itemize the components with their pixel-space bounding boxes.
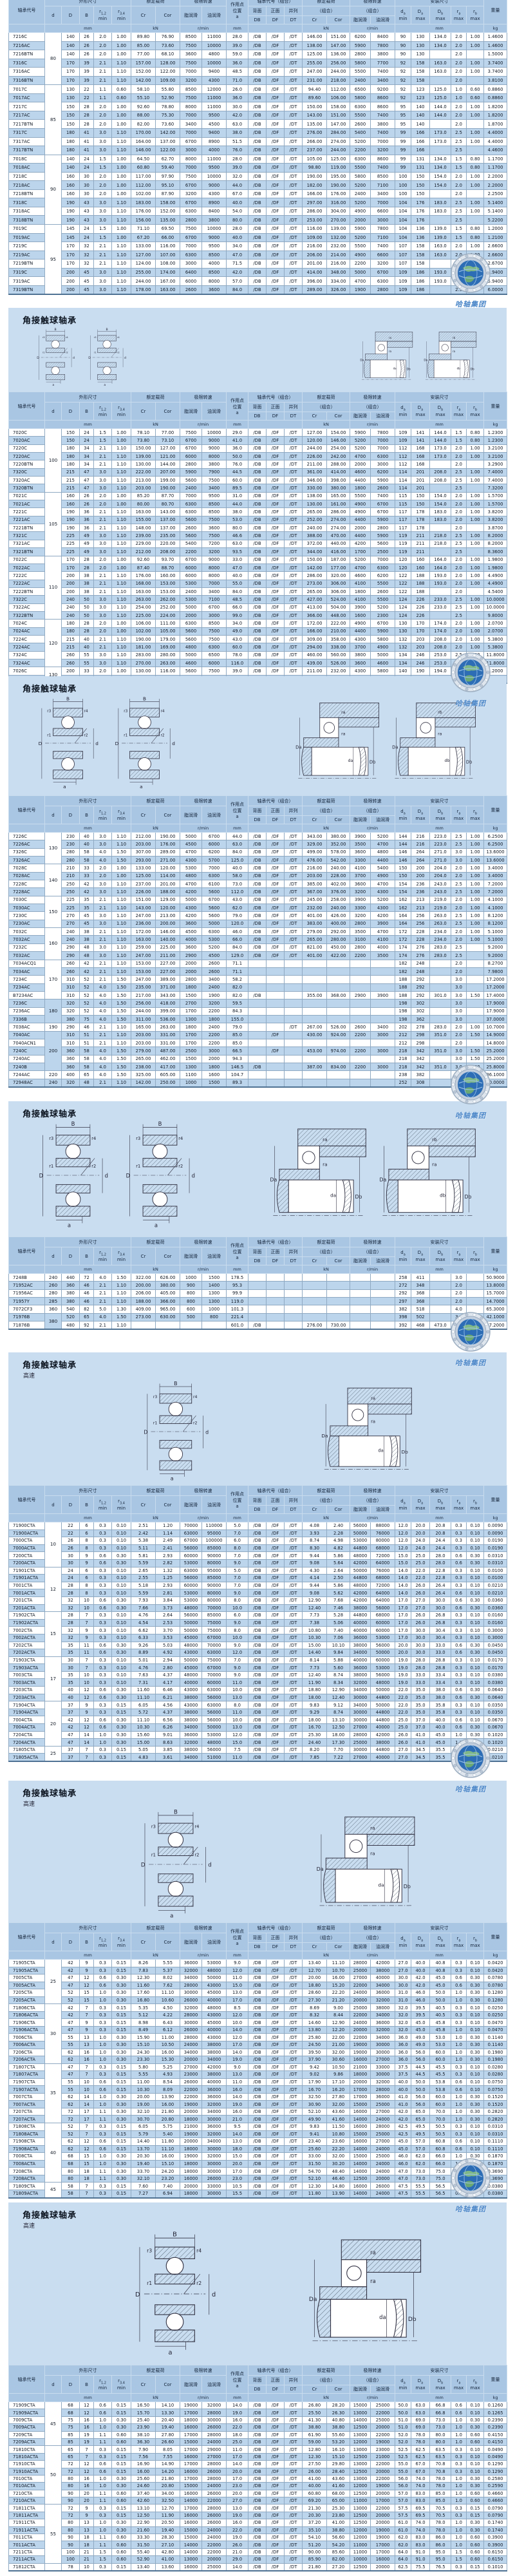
column-header: Cr: [303, 1943, 327, 1951]
data-cell: 12.90: [327, 1687, 350, 1694]
brand-logo: 哈轴集团: [445, 1738, 496, 1794]
bore-diameter-group: 105: [45, 492, 62, 556]
data-cell: 30000: [371, 2049, 395, 2056]
data-cell: 14.40: [303, 1649, 327, 1657]
data-cell: 20.80: [156, 2483, 180, 2490]
data-cell: 1.5700: [484, 492, 507, 500]
section-title: 角接触球轴承: [8, 308, 507, 327]
column-header: ramax: [451, 2376, 467, 2394]
data-cell: 8.74: [327, 1709, 350, 1716]
column-header: DB: [248, 1943, 267, 1951]
data-cell: 7: [80, 2446, 94, 2453]
data-cell: 3.0: [94, 596, 112, 603]
data-cell: 2.1: [94, 68, 112, 77]
data-cell: [303, 1039, 327, 1046]
data-cell: /DF: [267, 2093, 285, 2101]
bearing-code: 7022AC: [9, 563, 45, 571]
data-cell: 200: [411, 872, 430, 880]
data-cell: 15000: [350, 2153, 371, 2161]
bearing-code: 71901ACTA: [9, 1575, 45, 1582]
data-cell: 47.0: [395, 2175, 411, 2183]
data-cell: 367.00: [303, 888, 327, 896]
data-cell: 52: [62, 1996, 80, 2004]
data-cell: /DT: [285, 2101, 303, 2108]
data-cell: 0.10: [467, 1544, 484, 1552]
data-cell: /DB: [248, 1687, 267, 1694]
data-cell: 25000: [350, 1967, 371, 1975]
data-cell: /DT: [285, 2026, 303, 2034]
data-cell: /DB: [248, 1960, 267, 1967]
data-cell: 5.0: [227, 1567, 248, 1575]
data-cell: /DT: [285, 1596, 303, 1604]
bearing-code: 7005CTA: [9, 1975, 45, 1982]
data-cell: 0.15: [112, 1967, 131, 1975]
data-cell: 48000: [202, 2004, 227, 2012]
data-cell: 4700: [350, 277, 371, 286]
data-cell: [285, 1274, 303, 1282]
unit-label: kN: [131, 1265, 180, 1274]
bearing-code: 7003CTA: [9, 1671, 45, 1679]
data-cell: 4900: [350, 620, 371, 627]
data-cell: 15000: [180, 2438, 202, 2445]
data-cell: 69.0: [411, 2424, 430, 2431]
data-cell: 12000: [350, 2483, 371, 2490]
data-cell: 32000: [350, 1679, 371, 1687]
data-cell: 0.30: [112, 2483, 131, 2490]
data-cell: 360: [62, 1047, 80, 1055]
column-header: 额定载荷: [131, 0, 180, 6]
data-cell: /DT: [285, 1575, 303, 1582]
data-cell: [430, 1015, 451, 1023]
data-cell: 416.00: [327, 548, 350, 556]
data-cell: /DB: [248, 1716, 267, 1724]
data-cell: 4100: [350, 864, 371, 872]
data-cell: 7: [80, 2183, 94, 2190]
data-cell: 1.10: [112, 643, 131, 651]
data-cell: 0.10: [467, 2145, 484, 2153]
data-cell: 0.10: [467, 2078, 484, 2086]
data-cell: 142.00: [156, 129, 180, 138]
data-cell: 176: [411, 198, 430, 207]
data-cell: 0.1740: [484, 2526, 507, 2533]
data-cell: 60.0: [430, 2101, 451, 2108]
data-cell: 0.6: [451, 2138, 467, 2146]
data-cell: 15000: [180, 2483, 202, 2490]
bearing-code: 7319BTN: [9, 285, 45, 294]
data-cell: 1000: [180, 1274, 202, 1282]
data-cell: 4.1000: [484, 896, 507, 904]
data-cell: 154: [395, 880, 411, 888]
data-cell: 17.10: [327, 2078, 350, 2086]
data-cell: 0.30: [112, 1649, 131, 1657]
data-cell: 47.0: [395, 2168, 411, 2175]
data-cell: 120: [395, 563, 411, 571]
data-cell: 294.00: [303, 643, 327, 651]
column-header: 外形尺寸: [45, 1923, 131, 1933]
column-header: 正面: [267, 2376, 285, 2385]
data-cell: 38000: [350, 1671, 371, 1679]
data-cell: /DF: [267, 102, 285, 111]
column-header: DB: [248, 412, 267, 421]
data-cell: 24: [62, 1575, 80, 1582]
data-cell: 46.0: [411, 1996, 430, 2004]
data-cell: /DF: [267, 2041, 285, 2049]
data-cell: /DB: [248, 76, 267, 85]
data-cell: 104: [395, 207, 411, 216]
data-cell: /DB: [248, 627, 267, 635]
data-cell: 33.0: [411, 1671, 430, 1679]
data-cell: 348.00: [327, 268, 350, 277]
data-cell: 0.6: [94, 1596, 112, 1604]
data-cell: 17.0: [227, 2453, 248, 2460]
data-cell: 12.70: [303, 1967, 327, 1975]
data-cell: 147.00: [327, 41, 350, 50]
data-cell: 1.10: [112, 572, 131, 580]
data-cell: 47: [62, 2071, 80, 2079]
column-header: d: [45, 6, 62, 24]
data-cell: 1.5: [94, 437, 112, 444]
data-cell: 42000: [202, 2063, 227, 2071]
data-cell: 380.00: [327, 833, 350, 840]
data-cell: 6700: [202, 603, 227, 611]
column-header: Damax: [411, 402, 430, 421]
data-cell: 174.00: [156, 268, 180, 277]
data-cell: /DF: [267, 516, 285, 524]
data-cell: 4400: [350, 532, 371, 540]
data-cell: 19000: [350, 2041, 371, 2049]
data-cell: /DB: [248, 68, 267, 77]
data-cell: 1.0: [94, 2101, 112, 2108]
data-cell: 7500: [180, 225, 202, 234]
data-cell: 1.10: [112, 635, 131, 643]
column-header: rbmax: [467, 6, 484, 24]
data-cell: 63.0: [227, 840, 248, 848]
data-cell: 8: [80, 1544, 94, 1552]
data-cell: 41.0: [395, 2101, 411, 2108]
data-cell: /DF: [267, 556, 285, 563]
data-cell: 9.5: [227, 2123, 248, 2131]
data-cell: 50.0: [227, 453, 248, 460]
data-cell: 414.00: [327, 468, 350, 476]
data-cell: 292: [411, 991, 430, 999]
data-cell: 39.50: [303, 2049, 327, 2056]
data-cell: 2600: [202, 967, 227, 975]
table-header: 轴承代号外形尺寸额定载荷极限转速作用点位置a轴承代号（组合）额定载荷极限转速安装…: [9, 2365, 507, 2402]
data-cell: 35.0: [411, 1694, 430, 1701]
data-cell: /DF: [267, 1967, 285, 1975]
data-cell: /DT: [285, 920, 303, 927]
data-cell: 0.30: [112, 2526, 131, 2533]
data-cell: 2.53: [156, 1619, 180, 1627]
data-cell: 12.0: [395, 1522, 411, 1530]
data-cell: 1.50: [112, 1015, 131, 1023]
data-cell: 80: [62, 2526, 80, 2533]
data-cell: /DB: [248, 285, 267, 294]
data-cell: 14.7000: [484, 1298, 507, 1305]
data-cell: 0.30: [112, 2093, 131, 2101]
data-cell: /DT: [285, 1537, 303, 1545]
data-cell: 0.10: [467, 2468, 484, 2475]
data-cell: 3.0: [94, 477, 112, 484]
data-cell: 75: [80, 1015, 94, 1023]
unit-label: [9, 1951, 45, 1960]
data-cell: 7: [80, 2071, 94, 2079]
data-cell: 64000: [371, 1596, 395, 1604]
data-cell: /DT: [285, 548, 303, 556]
data-cell: 276.00: [303, 129, 327, 138]
column-header: Dbmax: [430, 1496, 451, 1514]
data-cell: 0.6: [451, 1716, 467, 1724]
data-cell: 3600: [350, 880, 371, 888]
data-cell: 24000: [350, 1989, 371, 1997]
data-cell: 6.0: [227, 1537, 248, 1545]
data-cell: 48.5: [227, 68, 248, 77]
data-cell: 3.0: [451, 848, 467, 856]
column-header: 脂润滑: [350, 2385, 371, 2394]
data-cell: 1.50: [112, 976, 131, 983]
data-cell: /DT: [285, 277, 303, 286]
data-cell: 0.0090: [484, 1529, 507, 1537]
data-cell: 263.00: [156, 1023, 180, 1031]
data-cell: 1.00: [467, 596, 484, 603]
column-header: DT: [285, 1257, 303, 1265]
data-cell: 56000: [371, 1604, 395, 1612]
data-cell: 37: [62, 1709, 80, 1716]
data-cell: 4400: [350, 516, 371, 524]
data-cell: 0.1740: [484, 2519, 507, 2526]
data-cell: /DT: [285, 2519, 303, 2526]
data-cell: 5.59: [131, 1589, 156, 1597]
table-row: 71906ACTA4790.30.158.496.12260004000014.…: [9, 2026, 507, 2034]
data-cell: 3.0: [451, 1007, 467, 1015]
data-cell: 7000: [180, 242, 202, 251]
data-cell: 27000: [180, 2063, 202, 2071]
data-cell: 1.9800: [484, 556, 507, 563]
data-cell: 9200: [371, 85, 395, 94]
column-header: 安装尺寸: [395, 2365, 484, 2376]
data-cell: 1.50: [112, 857, 131, 864]
column-header: ramax: [451, 806, 467, 824]
data-cell: [285, 1015, 303, 1023]
data-cell: [285, 1007, 303, 1015]
data-cell: 504.00: [327, 603, 350, 611]
data-cell: 7500: [202, 667, 227, 675]
data-cell: 9.0: [227, 1960, 248, 1967]
data-cell: 35.8: [430, 1701, 451, 1709]
data-cell: 5.79: [131, 2130, 156, 2138]
data-cell: /DF: [267, 2453, 285, 2460]
data-cell: 150: [62, 111, 80, 120]
data-cell: 0.30: [112, 1687, 131, 1694]
data-cell: 44.5: [411, 2071, 430, 2079]
data-cell: 37: [62, 1701, 80, 1709]
data-cell: /DT: [285, 2534, 303, 2541]
bearing-globe-logo-icon: [450, 652, 491, 693]
data-cell: /DT: [285, 1967, 303, 1975]
data-cell: /DF: [267, 1664, 285, 1672]
data-cell: 110000: [202, 1522, 227, 1530]
data-cell: 28: [80, 102, 94, 111]
data-cell: 30.4: [430, 1634, 451, 1642]
data-cell: 8.98: [131, 2019, 156, 2027]
data-cell: 125.00: [131, 872, 156, 880]
data-cell: /DT: [285, 1627, 303, 1634]
data-cell: 2.0: [451, 572, 467, 580]
data-cell: 0.15: [112, 2563, 131, 2571]
data-cell: 3.0: [94, 943, 112, 951]
data-cell: 75000: [202, 1656, 227, 1664]
data-cell: 90: [395, 50, 411, 59]
data-cell: 9: [80, 1552, 94, 1560]
data-cell: 3300: [350, 857, 371, 864]
data-cell: 15000: [350, 2130, 371, 2138]
data-cell: [156, 1321, 180, 1330]
data-cell: 5.62: [327, 1589, 350, 1597]
data-cell: 3.84: [156, 1596, 180, 1604]
data-cell: 0.3: [94, 2183, 112, 2190]
data-cell: 195.00: [327, 172, 350, 181]
data-cell: 2.0: [94, 189, 112, 198]
data-cell: 10.10: [327, 1642, 350, 1649]
data-cell: 10: [80, 2086, 94, 2094]
column-header: 额定载荷: [303, 392, 350, 402]
data-cell: 2.42: [131, 1529, 156, 1537]
data-cell: 170: [62, 76, 80, 85]
brand-logo: 哈轴集团: [445, 2157, 496, 2214]
data-cell: 119: [395, 540, 411, 547]
data-cell: 1.5000: [484, 50, 507, 59]
data-cell: /DT: [285, 2123, 303, 2131]
data-cell: 0.3: [94, 2512, 112, 2519]
data-cell: 3.0: [94, 912, 112, 920]
data-cell: 0.30: [467, 1996, 484, 2004]
data-cell: 172: [395, 936, 411, 943]
data-cell: 409.00: [131, 1305, 156, 1313]
data-cell: 0.30: [112, 1694, 131, 1701]
data-cell: 109: [395, 429, 411, 437]
unit-label: [248, 824, 303, 833]
data-cell: /DF: [267, 146, 285, 155]
data-cell: 14.8000: [484, 1039, 507, 1046]
data-cell: 0.30: [467, 2049, 484, 2056]
data-cell: 146: [395, 857, 411, 864]
data-cell: 2.1: [94, 643, 112, 651]
table-wrap: 轴承代号外形尺寸额定载荷极限转速作用点位置a轴承代号（组合）额定载荷极限转速安装…: [8, 1922, 507, 2199]
bearing-code: 7203ACTA: [9, 1694, 45, 1701]
data-cell: 52.10: [303, 2108, 327, 2116]
data-cell: 3.0: [94, 216, 112, 225]
data-cell: 11.90: [156, 2512, 180, 2519]
column-header: 油润滑: [371, 1506, 395, 1514]
bearing-code: 71810ACTA: [9, 2453, 45, 2460]
data-cell: 34.5: [411, 1746, 430, 1754]
data-cell: [327, 1015, 350, 1023]
data-cell: 129.0: [227, 952, 248, 960]
data-cell: 154.0: [430, 492, 451, 500]
data-cell: 74.0: [411, 2483, 430, 2490]
data-cell: 78.0: [411, 2431, 430, 2438]
data-cell: 12.0: [227, 2034, 248, 2041]
data-cell: 213: [411, 896, 430, 904]
data-cell: 9.42: [303, 2063, 327, 2071]
data-cell: 1900: [350, 285, 371, 294]
data-cell: 24000: [180, 2041, 202, 2049]
data-cell: [327, 1071, 350, 1079]
data-cell: /DF: [267, 41, 285, 50]
data-cell: 3000: [371, 1063, 395, 1070]
table-row: 7002CTA3290.30.106.623.7050000750008.0/D…: [9, 1627, 507, 1634]
data-cell: [371, 960, 395, 967]
section-title: 角接触球轴承: [8, 1352, 507, 1371]
bearing-code: 71976B: [9, 1313, 45, 1321]
data-cell: /DB: [248, 991, 267, 999]
data-cell: 0.3: [94, 1582, 112, 1589]
data-cell: 76.90: [156, 33, 180, 42]
data-cell: 279.00: [131, 1047, 156, 1055]
data-cell: 70.5: [430, 2505, 451, 2512]
data-cell: 4300: [371, 904, 395, 912]
column-header: 重量: [484, 0, 507, 24]
section-subtitle: 高速: [8, 1371, 507, 1379]
column-header: （组合）: [303, 806, 350, 816]
data-cell: 231.00: [303, 76, 327, 85]
data-cell: 82.0: [227, 991, 248, 999]
data-cell: 75: [62, 2424, 80, 2431]
data-cell: 306.00: [327, 580, 350, 587]
data-cell: 26: [80, 33, 94, 42]
table-row: 7207CTA72171.10.3032.1021.80200003400016…: [9, 2108, 507, 2116]
unit-label: kN: [303, 1514, 350, 1522]
data-cell: 3000: [180, 260, 202, 269]
data-cell: 6: [80, 1575, 94, 1582]
data-cell: 5500: [350, 492, 371, 500]
data-cell: 78.0: [430, 2483, 451, 2490]
data-cell: 274.00: [327, 516, 350, 524]
data-cell: 182: [395, 960, 411, 967]
data-cell: 4.92: [156, 1649, 180, 1657]
bearing-code: 7017C: [9, 85, 45, 94]
data-cell: 1.0: [451, 2534, 467, 2541]
data-cell: 0.15: [112, 2409, 131, 2416]
brand-name: 哈轴集团: [445, 1358, 496, 1368]
data-cell: /DB: [248, 1664, 267, 1672]
data-cell: 1.1700: [484, 164, 507, 173]
data-cell: [430, 484, 451, 492]
data-cell: 125.00: [327, 155, 350, 164]
data-cell: 0.15: [112, 2461, 131, 2468]
data-cell: 40000: [202, 2026, 227, 2034]
data-cell: 4.0: [94, 999, 112, 1007]
data-cell: 140: [411, 102, 430, 111]
data-cell: 2900: [350, 991, 371, 999]
data-cell: /DF: [267, 1612, 285, 1620]
data-cell: 78.0: [430, 2519, 451, 2526]
data-cell: /DT: [285, 1989, 303, 1997]
data-cell: [371, 976, 395, 983]
data-cell: 34000: [350, 1701, 371, 1709]
data-cell: 5900: [350, 429, 371, 437]
data-cell: 2.1: [94, 896, 112, 904]
data-cell: /DT: [285, 556, 303, 563]
data-cell: 200: [62, 667, 80, 675]
bore-diameter-group: 240: [45, 1274, 62, 1282]
data-cell: 2.0: [451, 872, 467, 880]
data-cell: 600: [180, 1305, 202, 1313]
data-cell: /DB: [248, 2034, 267, 2041]
data-cell: 38: [80, 580, 94, 587]
bearing-code: 7030AC: [9, 904, 45, 912]
data-cell: /DT: [285, 1960, 303, 1967]
